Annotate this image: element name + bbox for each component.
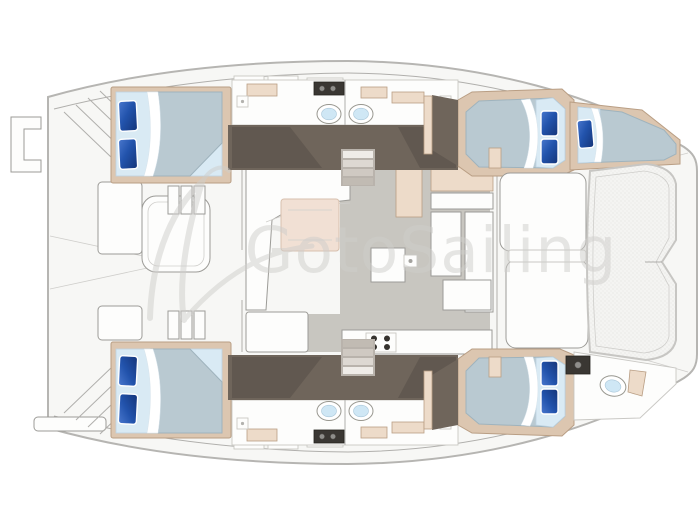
galley-counter: [396, 167, 422, 217]
bow-crew-berth: [570, 102, 680, 170]
sink-basin-icon: [575, 362, 581, 368]
swim-platform: [34, 417, 106, 431]
port-hull: [111, 80, 574, 186]
sink-counter: [566, 356, 590, 374]
starboard-hull: [111, 339, 574, 445]
foredeck-locker: [489, 148, 501, 168]
cockpit-bench: [98, 182, 142, 254]
pillow: [577, 119, 594, 148]
davit-bracket: [11, 117, 41, 172]
cockpit-bench: [98, 306, 142, 340]
floor-plan-canvas: GotoSailing: [0, 0, 700, 525]
saloon-seat: [246, 312, 308, 352]
galley-cabinet: [431, 193, 493, 209]
catamaran-floor-plan: GotoSailing: [0, 0, 700, 525]
watermark-text: GotoSailing: [245, 214, 618, 287]
foredeck-locker: [489, 357, 501, 377]
